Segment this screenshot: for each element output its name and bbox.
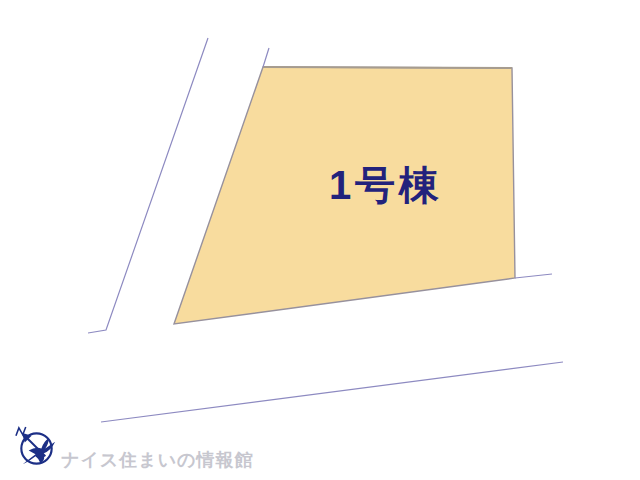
lot-top-edge: [263, 67, 512, 68]
lower-road-edge: [101, 362, 563, 422]
lot-bottom-boundary-extension: [515, 274, 552, 278]
site-plan-drawing: [0, 0, 640, 480]
lot-label: 1号棟: [296, 158, 476, 213]
left-road-inner-edge: [263, 48, 269, 67]
site-plan-canvas: 1号棟 ナイス住まいの情報館: [0, 0, 640, 480]
